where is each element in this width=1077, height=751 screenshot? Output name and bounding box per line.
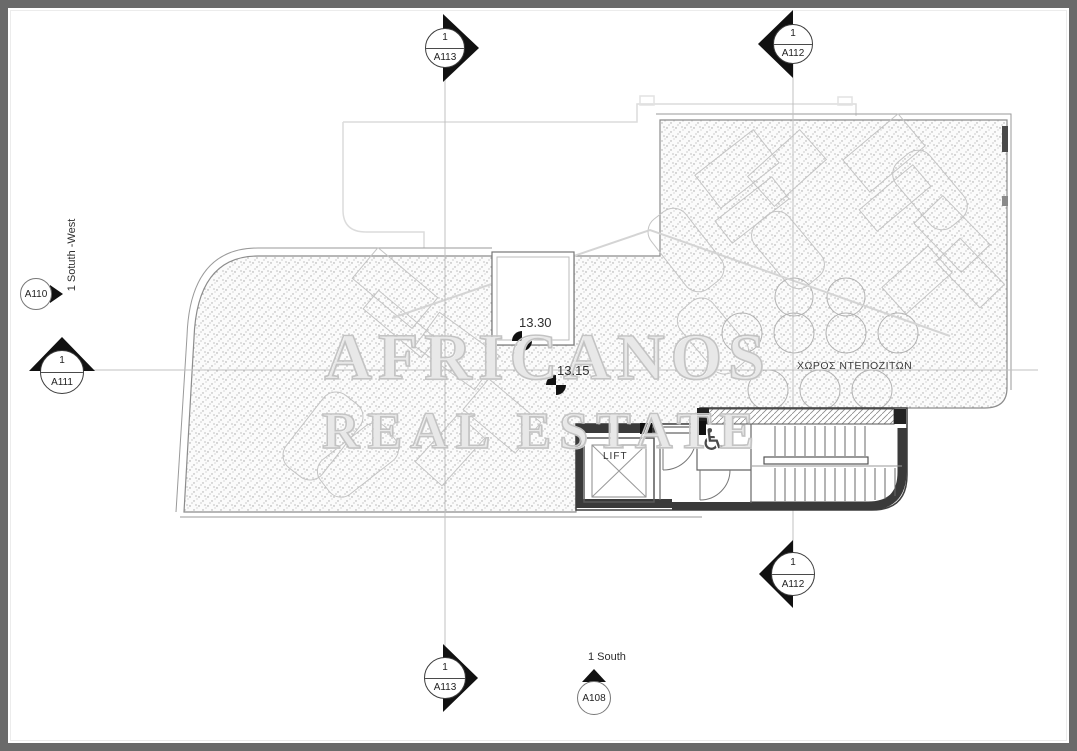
watermark-line1: AFRICANOS (300, 320, 795, 396)
south-view-label: 1 South (588, 651, 626, 663)
marker-sheet: A108 (578, 682, 610, 714)
marker-sheet: A110 (21, 279, 51, 309)
deposit-room-label: ΧΩΡΟΣ ΝΤΕΠΟΖΙΤΩΝ (797, 360, 912, 372)
watermark-line2: REAL ESTATE (292, 402, 792, 461)
south-west-view-label: 1 Sotuth -West (66, 207, 78, 303)
level-label-upper: 13.30 (519, 315, 552, 330)
lift-room-label: LIFT (603, 451, 628, 462)
floor-plan-sheet: AFRICANOS REAL ESTATE 13.30 13.15 LIFT Χ… (0, 0, 1077, 751)
level-label-lower: 13.15 (557, 363, 590, 378)
